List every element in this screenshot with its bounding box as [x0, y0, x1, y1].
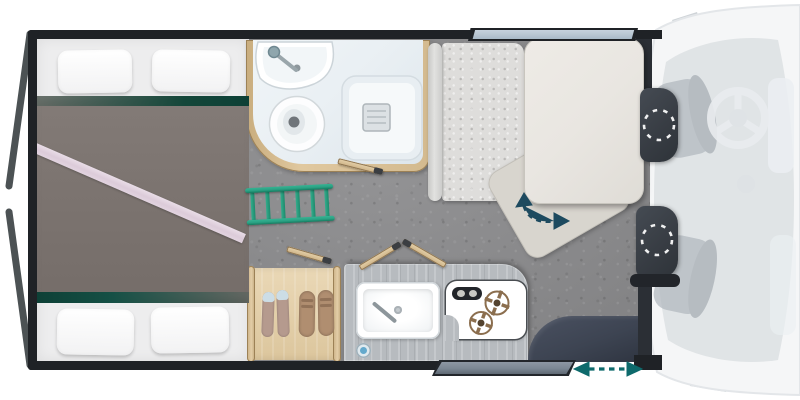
faucet-knob — [356, 343, 371, 358]
pillow — [57, 308, 135, 355]
bench-backrest — [428, 43, 442, 201]
entry-step — [528, 316, 648, 362]
sneaker — [318, 290, 335, 336]
slipper — [276, 290, 290, 337]
wall-top — [28, 30, 472, 39]
ladder-rail — [247, 216, 335, 226]
bed-stripe — [37, 96, 249, 106]
seat-swivel-arc-icon — [639, 222, 679, 262]
rear-door-bar — [9, 34, 30, 186]
pillow — [151, 306, 230, 353]
bed-stripe — [37, 292, 249, 303]
floorplan-stage — [0, 0, 800, 400]
wall-top — [636, 30, 662, 39]
ladder — [245, 184, 335, 229]
ladder-rung — [324, 187, 330, 218]
wardrobe-trim — [333, 266, 341, 362]
hob-burners — [460, 288, 524, 338]
rear-door-bar — [9, 212, 30, 365]
slipper — [261, 292, 275, 337]
table-swivel-arrow-icon — [512, 190, 572, 234]
shower-tray — [342, 76, 422, 160]
ladder-rung — [250, 191, 256, 222]
bathroom-fixtures — [250, 40, 430, 172]
sliding-door-panel — [434, 362, 574, 374]
ladder-rung — [265, 190, 271, 221]
ladder-rung — [280, 189, 286, 220]
sliding-door — [432, 360, 576, 376]
window — [468, 28, 638, 41]
sneaker — [299, 291, 316, 337]
cab-window-highlight — [768, 78, 794, 173]
seat-swivel-arc-icon — [641, 107, 681, 147]
window-glass — [471, 30, 635, 39]
washbasin — [256, 42, 333, 89]
wall-left — [28, 30, 37, 370]
cab-partition — [638, 286, 652, 361]
ladder-rung — [310, 188, 316, 219]
pillow — [152, 49, 231, 92]
pillow — [58, 49, 133, 93]
door-slide-arrow-icon — [572, 360, 644, 378]
toilet — [270, 97, 325, 152]
cab-window-highlight — [770, 235, 796, 335]
dinette-table — [524, 38, 644, 204]
gear-knob — [737, 175, 755, 193]
seat-backrest — [630, 274, 680, 287]
sink-drain — [394, 306, 402, 314]
ladder-rung — [295, 188, 301, 219]
